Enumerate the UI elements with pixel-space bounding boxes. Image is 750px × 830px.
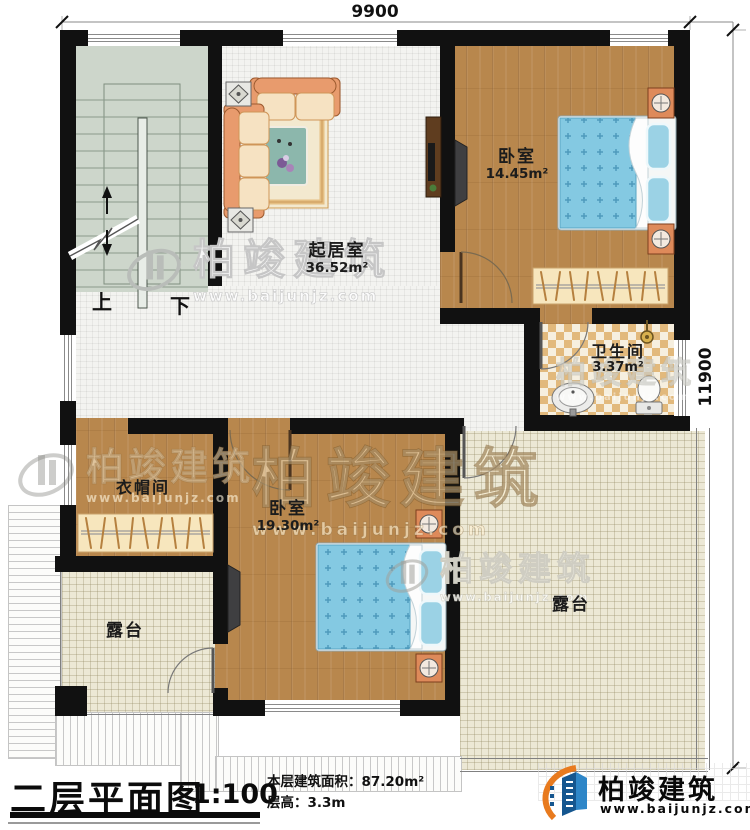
side-table-bottom — [228, 208, 253, 232]
room-name: 起居室 — [295, 242, 379, 261]
cloakroom-label: 衣帽间 — [108, 479, 178, 497]
company-logo-icon — [540, 764, 598, 824]
room-area: 36.52m² — [295, 261, 379, 276]
room-name: 露台 — [97, 622, 153, 641]
title-underline — [10, 812, 260, 818]
bedroom2-label: 卧室 19.30m² — [246, 500, 330, 534]
stairs-up-label: 上 — [92, 286, 112, 315]
bedroom1-wardrobe — [533, 268, 668, 304]
cloakroom-wardrobe — [78, 514, 213, 552]
bathroom-label: 卫生间 3.37m² — [584, 343, 652, 375]
room-area: 3.37m² — [584, 361, 652, 375]
bedroom2-door — [230, 430, 290, 490]
room-name: 卧室 — [246, 500, 330, 519]
room-area: 14.45m² — [475, 167, 559, 182]
staircase — [70, 84, 208, 308]
shower-head-icon — [641, 320, 653, 343]
bedroom1-tv — [455, 140, 467, 206]
floor-height-text: 层高：3.3m — [267, 793, 424, 814]
terrace-right-door — [464, 426, 516, 478]
bedroom2-bed — [316, 543, 446, 651]
bathroom-sink — [552, 383, 594, 416]
dimension-right: 11900 — [696, 337, 716, 417]
stairs-down-label: 下 — [170, 290, 190, 319]
bedroom2-nightstand-top — [416, 510, 442, 538]
terrace-right-label: 露台 — [543, 596, 599, 615]
floor-area-text: 本层建筑面积：87.20m² — [267, 772, 424, 793]
room-name: 露台 — [543, 596, 599, 615]
bathroom-door — [541, 322, 588, 369]
bedroom2-tv — [228, 565, 240, 632]
title-underline-thin — [8, 822, 260, 824]
bedroom2-nightstand-bottom — [416, 654, 442, 682]
side-table-top — [226, 82, 251, 106]
room-area: 19.30m² — [246, 519, 330, 534]
bedroom1-nightstand-bottom — [648, 224, 674, 254]
living-room-label: 起居室 36.52m² — [295, 242, 379, 276]
bedroom1-bed — [558, 116, 676, 230]
room-name: 卫生间 — [584, 343, 652, 361]
terrace-left-label: 露台 — [97, 622, 153, 641]
tv-cabinet-living — [426, 117, 441, 197]
terrace-left-door — [168, 648, 213, 693]
plan-info: 本层建筑面积：87.20m² 层高：3.3m — [267, 772, 424, 814]
plan-scale: 1:100 — [192, 779, 278, 810]
plan-graphics — [0, 0, 750, 830]
company-url: www.baijunjz.com — [600, 801, 750, 816]
floor-plan: 柏竣建筑 www.baijunjz.com 柏竣建筑 www.baijunjz.… — [0, 0, 750, 830]
dimension-top: 9900 — [340, 2, 410, 22]
room-name: 卧室 — [475, 148, 559, 167]
bathroom-toilet — [636, 376, 662, 414]
bedroom1-door — [461, 252, 512, 303]
bedroom1-nightstand-top — [648, 88, 674, 118]
bedroom1-label: 卧室 14.45m² — [475, 148, 559, 182]
coffee-table — [265, 127, 307, 185]
room-name: 衣帽间 — [108, 479, 178, 497]
